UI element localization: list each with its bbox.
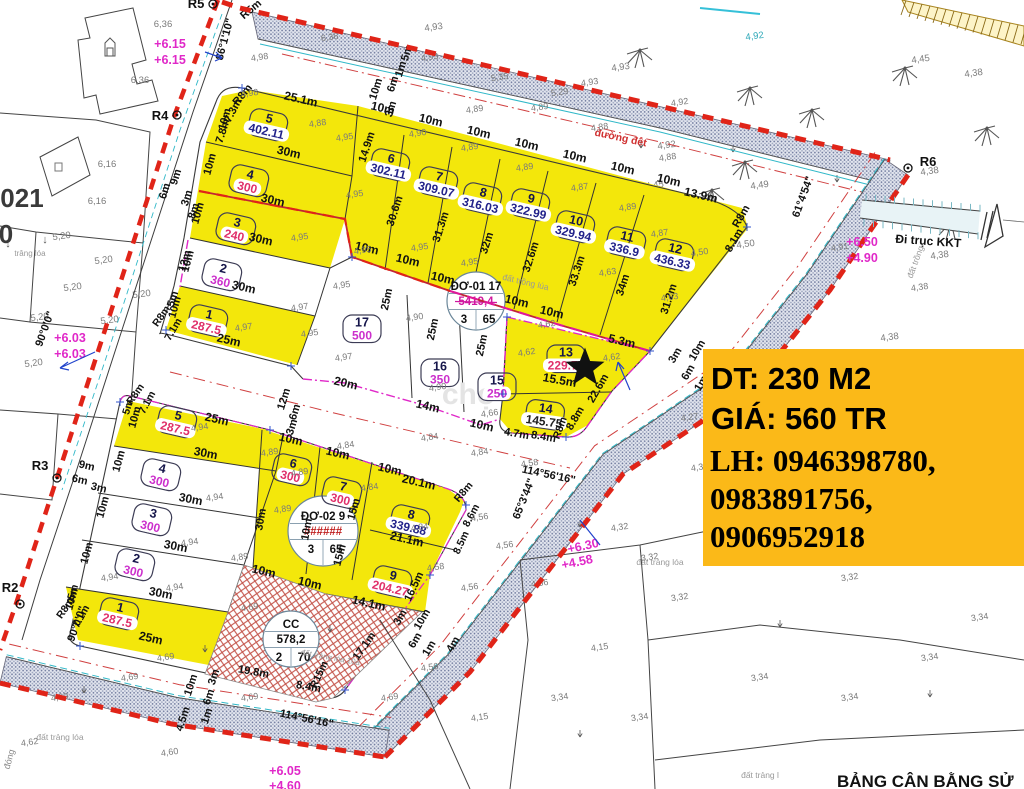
svg-text:6,36: 6,36 xyxy=(154,19,173,30)
svg-text:+6.03: +6.03 xyxy=(54,331,86,345)
svg-text:021: 021 xyxy=(0,183,43,213)
svg-text:13: 13 xyxy=(559,346,573,360)
svg-text:500: 500 xyxy=(352,329,372,343)
svg-text:đất trảng l: đất trảng l xyxy=(741,770,779,780)
svg-text:6,36: 6,36 xyxy=(131,75,150,86)
svg-text:65: 65 xyxy=(483,314,496,326)
svg-text:578,2: 578,2 xyxy=(277,634,306,646)
svg-text:BẢNG CÂN BẰNG SỬ: BẢNG CÂN BẰNG SỬ xyxy=(837,772,1014,789)
svg-text:+6.15: +6.15 xyxy=(154,53,186,67)
svg-text:+4.60: +4.60 xyxy=(269,779,301,789)
svg-text:đất trảng lóa: đất trảng lóa xyxy=(36,732,84,742)
svg-text:0983891756,: 0983891756, xyxy=(710,481,873,516)
svg-text:đất trảng lóa: đất trảng lóa xyxy=(636,557,684,567)
svg-text:R2: R2 xyxy=(2,580,19,595)
svg-text:R4: R4 xyxy=(152,108,169,123)
svg-text:LH: 0946398780,: LH: 0946398780, xyxy=(710,443,936,478)
svg-text:17: 17 xyxy=(355,316,369,330)
svg-text:CC: CC xyxy=(283,619,300,631)
svg-text:3: 3 xyxy=(461,314,467,326)
svg-text:6,16: 6,16 xyxy=(98,159,117,170)
svg-text:16: 16 xyxy=(433,360,447,374)
svg-text:+6.15: +6.15 xyxy=(154,37,186,51)
svg-text:GIÁ: 560 TR: GIÁ: 560 TR xyxy=(711,401,887,436)
svg-text:+6.50: +6.50 xyxy=(846,235,878,249)
svg-text:ĐƠ-01 17: ĐƠ-01 17 xyxy=(451,281,502,293)
svg-text:+4.90: +4.90 xyxy=(846,251,878,265)
svg-text:↓: ↓ xyxy=(42,234,48,246)
svg-text:0: 0 xyxy=(0,219,13,249)
svg-text:R5: R5 xyxy=(188,0,205,11)
svg-text:DT: 230 M2: DT: 230 M2 xyxy=(711,361,871,396)
svg-text:2: 2 xyxy=(276,652,282,664)
svg-text:0906952918: 0906952918 xyxy=(710,519,865,554)
svg-text:trâng lóa: trâng lóa xyxy=(14,249,46,258)
svg-text:R6: R6 xyxy=(920,154,937,169)
svg-text:3: 3 xyxy=(308,544,314,556)
svg-text:15: 15 xyxy=(490,374,504,388)
svg-text:+6.05: +6.05 xyxy=(269,764,301,778)
svg-text:R3: R3 xyxy=(32,458,49,473)
svg-text:6,16: 6,16 xyxy=(88,196,107,207)
